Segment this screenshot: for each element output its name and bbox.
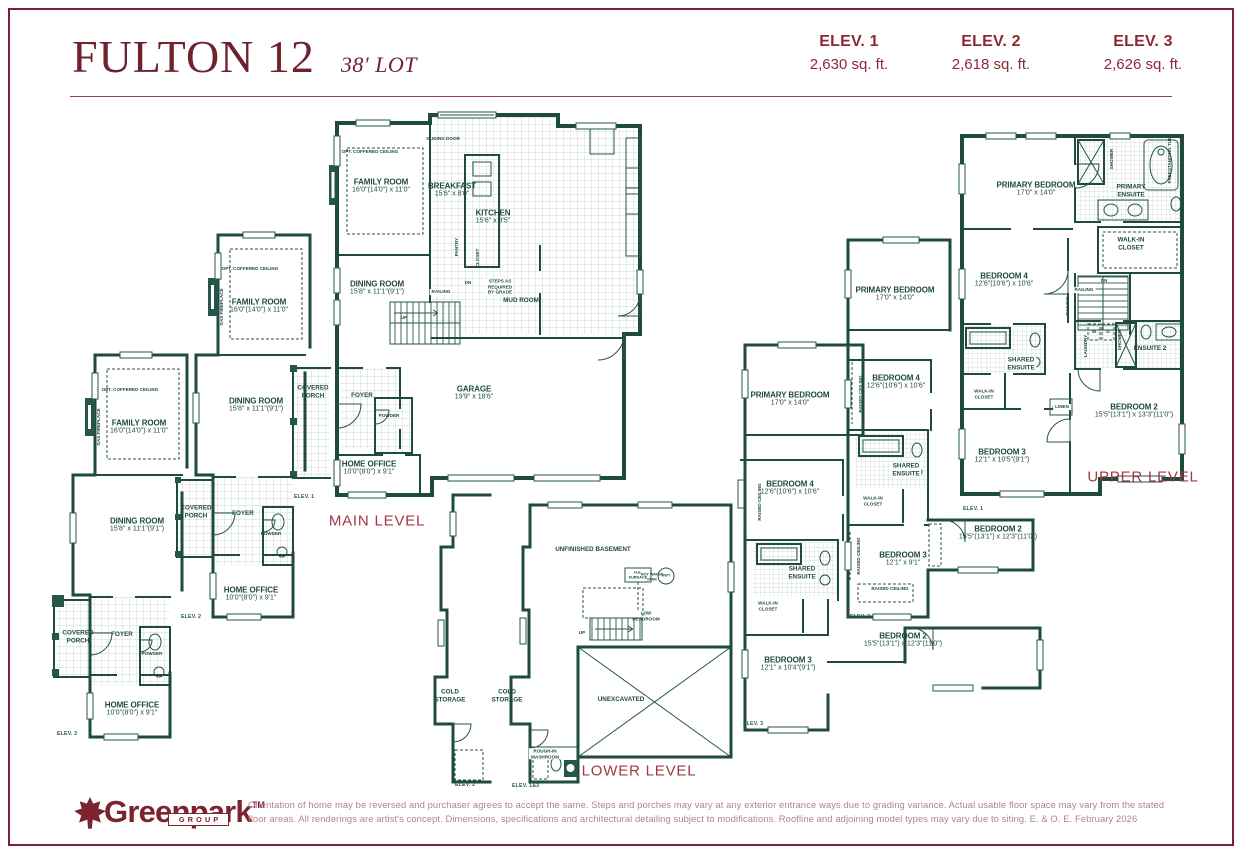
lower-elev2-tag: ELEV. 2 (455, 782, 475, 788)
main-level-elev3-plan (52, 345, 237, 745)
up-label: UP (401, 315, 407, 321)
elevation-2-area: 2,618 sq. ft. (931, 56, 1051, 73)
pantry-label: PANTRY (454, 238, 460, 256)
bedroom2-label-e3: BEDROOM 2 15'5"(13'1") x 12'3"(11'0") (864, 631, 942, 648)
walk-in-closet-label-e3: WALK-IN CLOSET (758, 600, 778, 611)
maple-leaf-icon (74, 797, 106, 831)
closet-label: CLOSET (475, 249, 481, 268)
lower-level-plan (433, 492, 735, 794)
dryer-label: D (1106, 329, 1109, 335)
upper-railing-label-2: RAILING (1065, 297, 1071, 316)
laundry-label: LAUNDRY (1083, 335, 1089, 357)
foyer-label-e3: FOYER (111, 631, 133, 639)
cold-storage-strip-elev2 (435, 495, 490, 782)
raised-ceiling-label-e2a: RAISED CEILING (858, 375, 864, 412)
covered-porch-label-e2: COVERED PORCH (180, 504, 211, 519)
gas-fireplace-label-e2: GAS FIREPLACE (219, 288, 225, 325)
gas-fireplace-label: GAS FIREPLACE (334, 167, 340, 204)
opt-coffered-label: OPT. COFFERED CEILING (342, 149, 399, 155)
main-elev3-tag: ELEV. 3 (57, 731, 77, 737)
bedroom4-label-e2: BEDROOM 4 12'6"(10'6") x 10'6" (867, 373, 926, 390)
bedroom4-label-e3: BEDROOM 4 12'6"(10'6") x 10'6" (761, 479, 820, 496)
brand-group-label: GROUP (168, 813, 229, 826)
ensuite2-label: ENSUITE 2 (1134, 345, 1167, 353)
breakfast-label: BREAKFAST 15'6" x 8'0" (428, 181, 476, 198)
opt-coffered-label-e3: OPT. COFFERED CEILING (102, 387, 159, 393)
main-elev2-tag: ELEV. 2 (181, 614, 201, 620)
shared-ensuite-label-e3: SHARED ENSUITE (786, 565, 817, 580)
family-room-label-e2: FAMILY ROOM 16'0"(14'0") x 11'0" (230, 297, 288, 314)
shower-label: SHOWER (1109, 149, 1115, 170)
washer-label: W (1092, 329, 1096, 335)
lower-elev13-tag: ELEV. 1&3 (512, 783, 539, 789)
dining-room-label-e2: DINING ROOM 15'8" x 11'1"(9'1") (229, 396, 283, 413)
page-title: FULTON 1238' LOT (72, 30, 417, 83)
dining-room-label: DINING ROOM 15'8" x 11'1"(9'1") (350, 279, 404, 296)
fireplace-icon (208, 278, 218, 316)
elevation-1-area: 2,630 sq. ft. (789, 56, 909, 73)
mud-room-label: MUD ROOM (503, 297, 539, 305)
primary-bedroom-label-e2: PRIMARY BEDROOM 17'0" x 14'0" (856, 285, 935, 302)
basement-up-label: UP (579, 630, 585, 636)
shower2-label: SHOWER (1117, 330, 1123, 351)
dining-room-label-e3: DINING ROOM 15'8" x 11'1"(9'1") (110, 516, 164, 533)
opt-coffered-label-e2: OPT. COFFERED CEILING (222, 266, 279, 272)
coffered-ceiling-outline (230, 249, 302, 339)
elevation-1-label: ELEV. 1 (789, 33, 909, 51)
bedroom4-label: BEDROOM 4 12'6"(10'6") x 10'6" (975, 271, 1034, 288)
sliding-door-label: SLIDING DOOR (426, 136, 460, 142)
elevation-3-area: 2,626 sq. ft. (1083, 56, 1203, 73)
bedroom3-label: BEDROOM 3 12'1" x 10'5"(9'1") (975, 447, 1030, 464)
home-office-label-e2: HOME OFFICE 10'0"(8'0") x 9'1" (224, 585, 278, 602)
primary-bedroom-label-e3: PRIMARY BEDROOM 17'0" x 14'0" (751, 390, 830, 407)
hot-water-label: HOT WATER TANK (641, 572, 664, 581)
walk-in-closet-label-e2: WALK-IN CLOSET (863, 495, 883, 506)
disclaimer-text: Orientation of home may be reversed and … (248, 798, 1193, 826)
gas-fireplace-label-e3: GAS FIREPLACE (96, 408, 102, 445)
covered-porch-label: COVERED PORCH (297, 384, 328, 399)
walk-in-closet-label: WALK-IN CLOSET (1118, 236, 1145, 251)
upper-elev2-tag: ELEV. 2 (850, 614, 870, 620)
bedroom3-label-e3: BEDROOM 3 12'1" x 10'4"(9'1") (761, 655, 816, 672)
raised-ceiling-label-e2c: RAISED CEILING (856, 537, 862, 574)
cold-storage-label-e2: COLD STORAGE (434, 688, 465, 703)
steps-grade-note: STEPS AS REQUIRED BY GRADE (486, 278, 514, 295)
powder-label: POWDER (379, 413, 400, 419)
unexcavated-label: UNEXCAVATED (596, 696, 647, 704)
main-level-title: MAIN LEVEL (329, 513, 425, 530)
elevation-1-stats: ELEV. 1 2,630 sq. ft. (789, 33, 909, 73)
bedroom3-label-e2: BEDROOM 3 12'1" x 9'1" (879, 550, 927, 567)
raised-ceiling-label-e3: RAISED CEILING (757, 483, 763, 520)
garage-label: GARAGE 19'9" x 18'6" (455, 384, 493, 401)
low-headroom-label: LOW HEADROOM (632, 610, 659, 621)
upper-elev1-tag: ELEV. 1 (963, 506, 983, 512)
bedroom2-label: BEDROOM 2 15'5"(13'1") x 13'3"(11'0") (1095, 402, 1173, 419)
main-elev1-tag: ELEV. 1 (294, 494, 314, 500)
home-office-label-e3: HOME OFFICE 10'0"(8'0") x 9'1" (105, 700, 159, 717)
foyer-label: FOYER (351, 392, 373, 400)
elevation-2-label: ELEV. 2 (931, 33, 1051, 51)
fireplace-icon (85, 398, 95, 436)
rough-in-label: ROUGH-IN WASHROOM (529, 748, 561, 759)
header-rule (70, 96, 1172, 97)
model-name: FULTON 12 (72, 31, 315, 82)
bedroom2-label-e2: BEDROOM 2 15'5"(13'1") x 12'3"(11'0") (959, 524, 1037, 541)
family-room-label-e3: FAMILY ROOM 16'0"(14'0") x 11'0" (110, 418, 168, 435)
elevation-3-label: ELEV. 3 (1083, 33, 1203, 51)
unfinished-basement-label: UNFINISHED BASEMENT (555, 546, 631, 554)
basement-outline (511, 502, 734, 782)
upper-elev3-tag: ELEV. 3 (743, 721, 763, 727)
kitchen-label: KITCHEN 15'6" x 8'5" (476, 208, 511, 225)
upper-level-title: UPPER LEVEL (1087, 469, 1198, 486)
home-office-label: HOME OFFICE 10'0"(8'0") x 9'1" (342, 459, 396, 476)
shared-ensuite-label: SHARED ENSUITE (1005, 356, 1036, 371)
shared-ensuite-label-e2: SHARED ENSUITE (890, 462, 921, 477)
railing-label: RAILING (430, 289, 453, 295)
foyer-label-e2: FOYER (232, 510, 254, 518)
cold-storage-label-e13: COLD STORAGE (491, 688, 522, 703)
family-room-label: FAMILY ROOM 16'0"(14'0") x 11'0" (352, 177, 410, 194)
upper-railing-label: RAILING (1073, 287, 1096, 293)
floorplan-sheet: FULTON 1238' LOT ELEV. 1 2,630 sq. ft. E… (0, 0, 1242, 854)
hwt-label: HWT (662, 574, 671, 579)
walk-in-closet2-label: WALK-IN CLOSET (974, 388, 994, 399)
lower-level-title: LOWER LEVEL (582, 763, 697, 780)
dn-label: DN (465, 280, 472, 286)
linen-label: LINEN (1053, 404, 1071, 410)
raised-ceiling-label-e2b: RAISED CEILING (871, 586, 908, 592)
primary-bedroom-label: PRIMARY BEDROOM 17'0" x 14'0" (997, 180, 1076, 197)
upper-dn-label: DN (1101, 278, 1108, 284)
lot-size: 38' LOT (341, 52, 417, 77)
elevation-2-stats: ELEV. 2 2,618 sq. ft. (931, 33, 1051, 73)
elevation-3-stats: ELEV. 3 2,626 sq. ft. (1083, 33, 1203, 73)
covered-porch-label-e3: COVERED PORCH (62, 629, 93, 644)
coffered-ceiling-outline (107, 369, 179, 459)
powder-label-e3: POWDER (142, 651, 163, 657)
freestanding-tub-label: FREESTANDING TUB (1167, 137, 1173, 184)
primary-ensuite-label: PRIMARY ENSUITE (1117, 183, 1146, 198)
powder-label-e2: POWDER (261, 531, 282, 537)
